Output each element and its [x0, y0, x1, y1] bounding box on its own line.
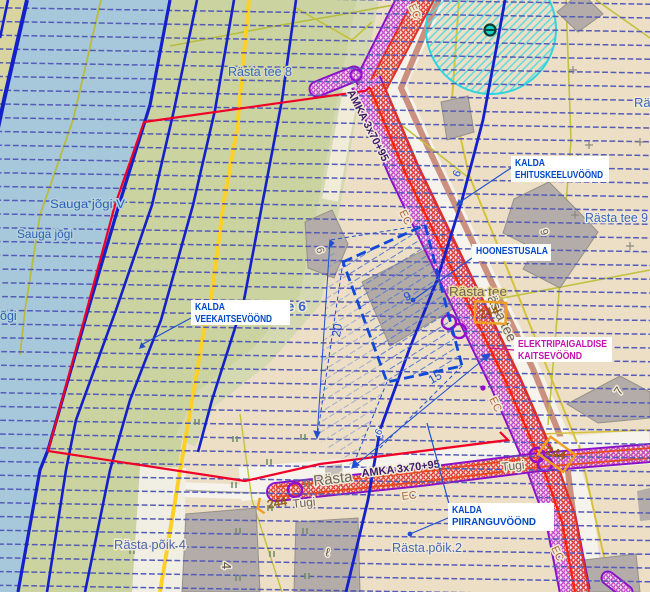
- svg-text:EC: EC: [401, 489, 418, 503]
- svg-text:HOONESTUSALA: HOONESTUSALA: [476, 246, 548, 257]
- svg-text:Sauga jõgi: Sauga jõgi: [17, 227, 73, 241]
- svg-text:Rästa tee 8: Rästa tee 8: [228, 65, 292, 79]
- svg-text:Rästa põik 2: Rästa põik 2: [392, 541, 462, 555]
- svg-text:Sauga jõgi V: Sauga jõgi V: [50, 199, 125, 211]
- svg-text:EHITUSKEELUVÖÖND: EHITUSKEELUVÖÖND: [515, 168, 603, 181]
- svg-text:ELEKTRIPAIGALDISE: ELEKTRIPAIGALDISE: [518, 339, 607, 350]
- svg-text:Rästa tee 9: Rästa tee 9: [585, 211, 648, 225]
- svg-text:VEEKAITSEVÖÖND: VEEKAITSEVÖÖND: [195, 312, 272, 325]
- svg-text:4: 4: [219, 562, 234, 569]
- svg-text:Tugi: Tugi: [292, 495, 316, 511]
- svg-text:Rä: Rä: [634, 95, 650, 110]
- svg-text:KALDA: KALDA: [195, 302, 225, 313]
- svg-text:Rästa põik 4: Rästa põik 4: [114, 538, 186, 552]
- svg-text:20: 20: [329, 322, 345, 338]
- svg-text:PIIRANGUVÖÖND: PIIRANGUVÖÖND: [452, 515, 536, 528]
- svg-text:KALDA: KALDA: [452, 505, 482, 516]
- svg-text:KAITSEVÖÖND: KAITSEVÖÖND: [518, 349, 582, 362]
- svg-text:õgi: õgi: [0, 309, 17, 323]
- svg-text:KALDA: KALDA: [515, 158, 545, 169]
- svg-text:Tugi: Tugi: [501, 458, 525, 474]
